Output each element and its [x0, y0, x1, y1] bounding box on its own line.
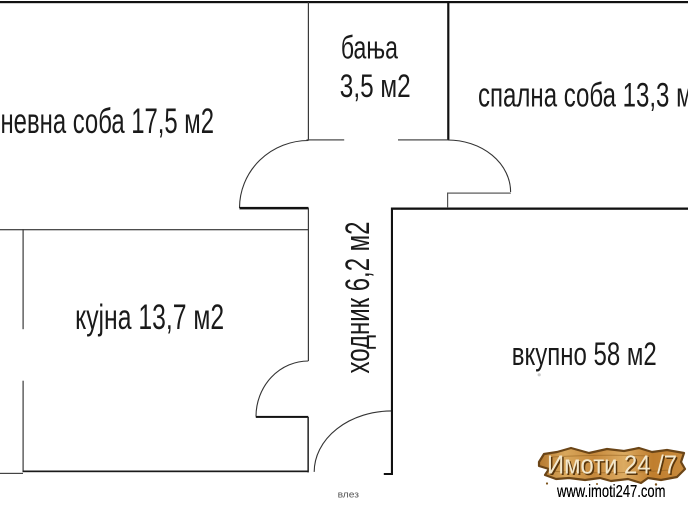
svg-text:кујна 13,7 м2: кујна 13,7 м2: [75, 298, 224, 337]
svg-text:невна соба 17,5 м2: невна соба 17,5 м2: [1, 102, 215, 141]
svg-text:бања: бања: [341, 30, 399, 66]
svg-text:спална соба 13,3 м2: спална соба 13,3 м2: [478, 77, 688, 115]
svg-text:влез: влез: [338, 490, 359, 500]
svg-text:3,5 м2: 3,5 м2: [340, 68, 411, 104]
svg-text:Имоти 24 /7: Имоти 24 /7: [547, 452, 677, 480]
svg-text:www.imoti247.com: www.imoti247.com: [556, 481, 665, 501]
svg-text:вкупно 58 м2: вкупно 58 м2: [512, 336, 657, 372]
svg-text:ходник 6,2 м2: ходник 6,2 м2: [339, 222, 377, 374]
